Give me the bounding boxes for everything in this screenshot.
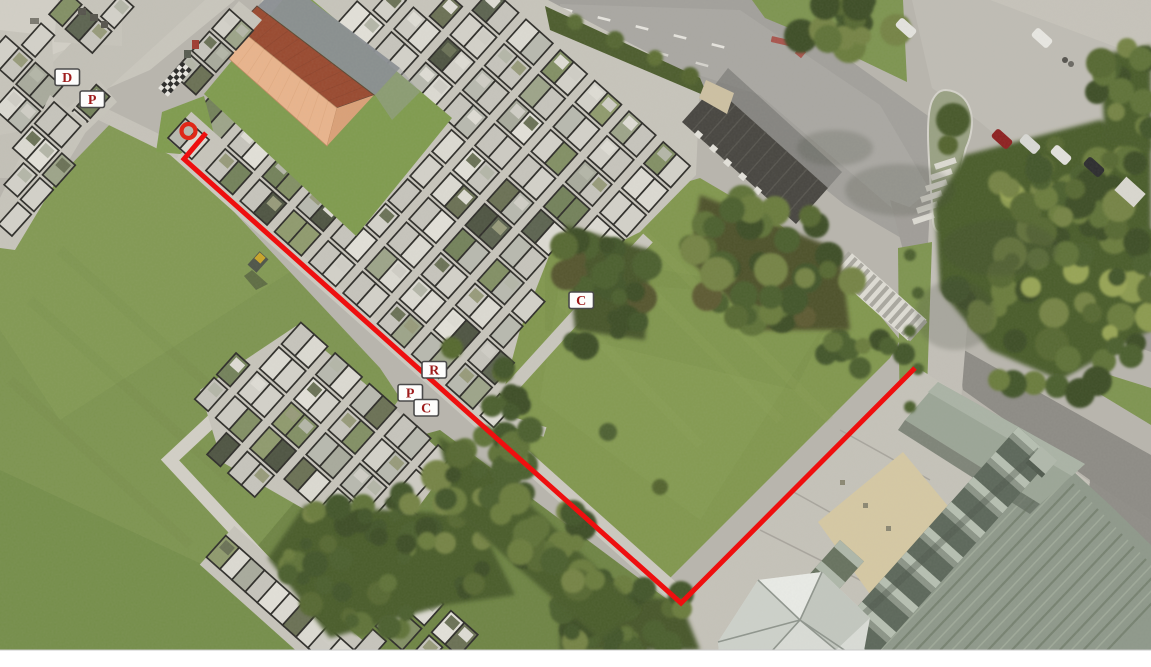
svg-text:P: P bbox=[406, 386, 415, 401]
svg-text:R: R bbox=[429, 363, 440, 378]
svg-text:P: P bbox=[88, 93, 97, 108]
svg-text:D: D bbox=[62, 71, 72, 86]
svg-text:C: C bbox=[421, 401, 431, 416]
svg-text:C: C bbox=[576, 294, 586, 309]
